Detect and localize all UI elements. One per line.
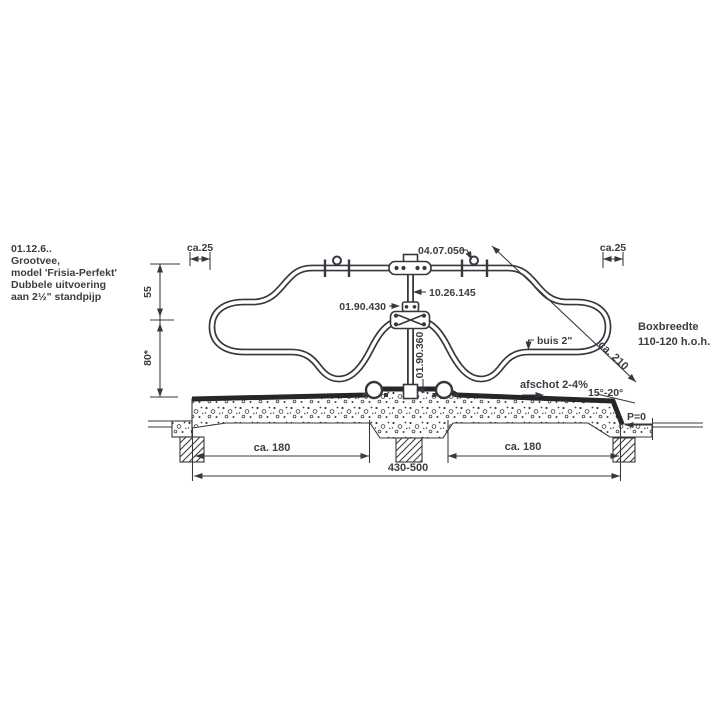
title-name: Grootvee, <box>11 255 60 267</box>
ground-socket <box>404 385 418 399</box>
foundation-hatch-center <box>396 438 422 462</box>
dim-diagonal: ca. 210 <box>490 244 638 384</box>
dim-edge-right: ca.25 <box>600 242 626 268</box>
dim-width-left: ca. 180 <box>195 420 370 463</box>
label-slope-text: afschot 2-4% <box>520 379 588 391</box>
divider-tube-right <box>410 268 608 379</box>
dim-edge-left-value: ca.25 <box>187 242 213 254</box>
neighbor-rail-section-left <box>366 382 382 398</box>
dim-level-value: P=0 <box>627 411 646 423</box>
dim-width-right-value: ca. 180 <box>505 441 542 453</box>
label-tube-text: buis 2" <box>537 335 572 347</box>
dim-height-lower-value: 80* <box>142 349 154 366</box>
divider-tube-left <box>212 268 410 379</box>
label-top-clamp: 04.07.050 <box>418 245 475 261</box>
label-box-width: Boxbreedte 110-120 h.o.h. <box>638 321 710 348</box>
divider-drawing: ca.25 ca.25 55 80* ca. 180 <box>0 0 720 720</box>
title-block: 01.12.6.. Grootvee, model 'Frisia-Perfek… <box>11 243 117 303</box>
dim-edge-left: ca.25 <box>187 242 213 270</box>
dim-height-upper-value: 55 <box>142 286 154 298</box>
label-ground-socket-text: 01.90.360 <box>414 331 426 378</box>
dim-heights: 55 80* <box>142 264 180 397</box>
dim-width-total-value: 430-500 <box>388 462 428 474</box>
title-model: model 'Frisia-Perfekt' <box>11 267 117 279</box>
technical-drawing-page: ca.25 ca.25 55 80* ca. 180 <box>0 0 720 720</box>
concrete-floor <box>148 389 703 462</box>
label-standpipe: 10.26.145 <box>413 287 476 299</box>
label-top-clamp-text: 04.07.050 <box>418 245 465 257</box>
dim-edge-right-value: ca.25 <box>600 242 626 254</box>
dim-diagonal-value: ca. 210 <box>596 339 631 373</box>
neighbor-rail-section-right <box>436 382 452 398</box>
label-bevel-angle: 15°-20° <box>588 387 623 399</box>
ground-line-left <box>148 421 172 427</box>
left-curb <box>172 421 192 437</box>
label-collar-text: 01.90.430 <box>339 301 386 313</box>
title-variant: Dubbele uitvoering <box>11 279 106 291</box>
rail-ring-left <box>333 257 341 265</box>
label-slope: afschot 2-4% <box>520 379 588 398</box>
label-box-width-line1: Boxbreedte <box>638 321 699 333</box>
title-code: 01.12.6.. <box>11 243 52 255</box>
label-box-width-line2: 110-120 h.o.h. <box>638 336 710 348</box>
dim-width-left-value: ca. 180 <box>254 442 291 454</box>
label-collar: 01.90.430 <box>339 301 400 313</box>
title-mount: aan 2½" standpijp <box>11 291 101 303</box>
foundation-hatch-right <box>613 438 635 462</box>
label-tube: buis 2" <box>526 335 573 350</box>
ground-line-right <box>652 423 703 427</box>
label-standpipe-text: 10.26.145 <box>429 287 476 299</box>
